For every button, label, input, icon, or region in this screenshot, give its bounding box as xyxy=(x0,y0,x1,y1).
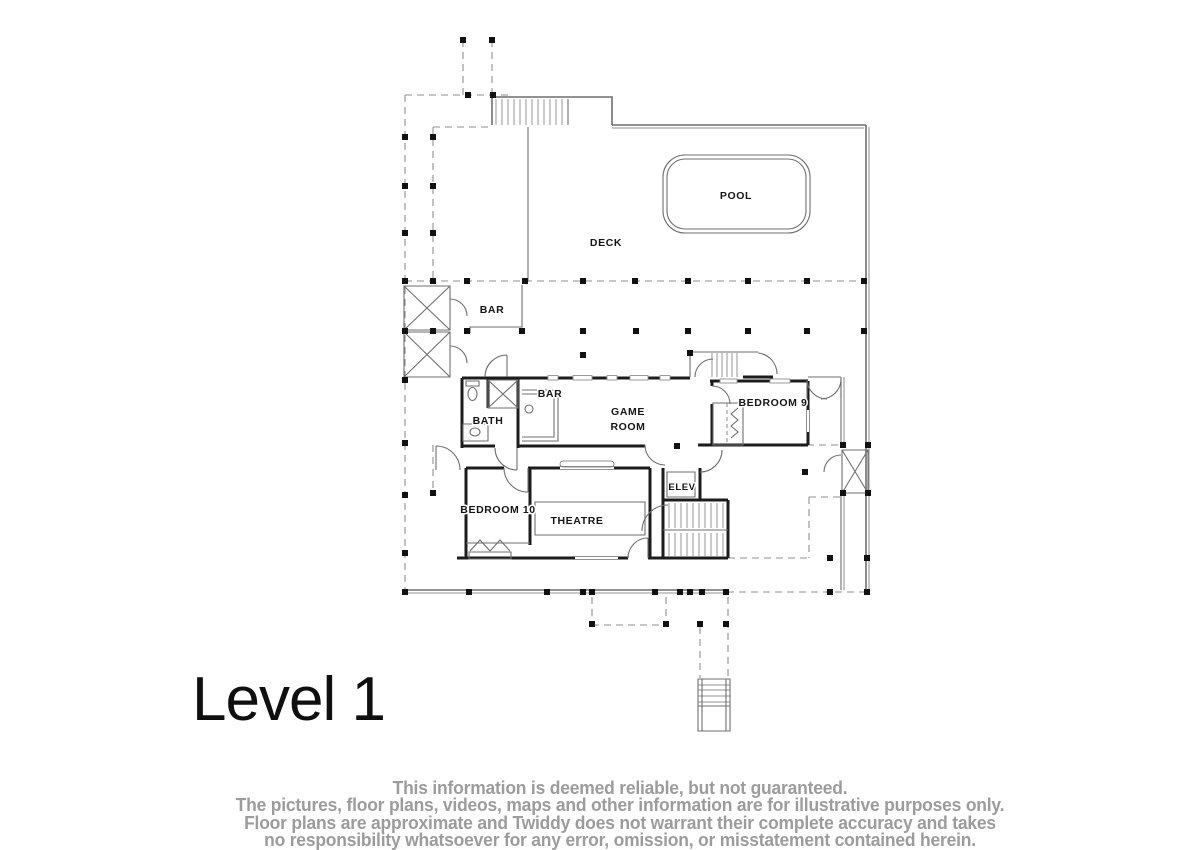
room-label-bedroom-10: BEDROOM 10 xyxy=(460,504,535,516)
bath-fixtures xyxy=(463,380,518,441)
door-swings xyxy=(436,355,841,558)
disclaimer: This information is deemed reliable, but… xyxy=(145,780,1096,850)
room-label-game-room-1: GAME xyxy=(611,406,645,418)
floor-plan-page: POOL DECK BAR BATH BAR GAME ROOM BEDROOM… xyxy=(0,0,1200,850)
room-label-game-room-2: ROOM xyxy=(610,421,645,433)
room-labels: POOL DECK BAR BATH BAR GAME ROOM BEDROOM… xyxy=(460,190,807,527)
dashed-deck-lines xyxy=(405,40,868,678)
room-label-bath: BATH xyxy=(473,415,504,427)
room-label-bar: BAR xyxy=(538,388,563,400)
floor-plan-drawing: POOL DECK BAR BATH BAR GAME ROOM BEDROOM… xyxy=(0,0,1200,850)
disclaimer-line: no responsibility whatsoever for any err… xyxy=(145,832,1096,849)
bedroom9-closet xyxy=(713,403,743,445)
room-label-theatre: THEATRE xyxy=(550,515,603,527)
room-label-outdoor-bar: BAR xyxy=(480,304,505,316)
deck-outline xyxy=(405,97,869,593)
room-label-bedroom-9: BEDROOM 9 xyxy=(739,397,808,409)
top-deck-stairs xyxy=(496,99,568,125)
upper-right-stairs xyxy=(690,352,777,377)
room-label-deck: DECK xyxy=(590,237,622,249)
room-label-elevator: ELEV xyxy=(668,482,695,493)
room-label-pool: POOL xyxy=(720,190,752,202)
outdoor-shower-right xyxy=(824,450,868,493)
level-title: Level 1 xyxy=(192,664,385,735)
bottom-walkway-stairs xyxy=(698,679,730,731)
main-stairs xyxy=(663,503,728,556)
bedroom10-closet xyxy=(466,540,530,559)
